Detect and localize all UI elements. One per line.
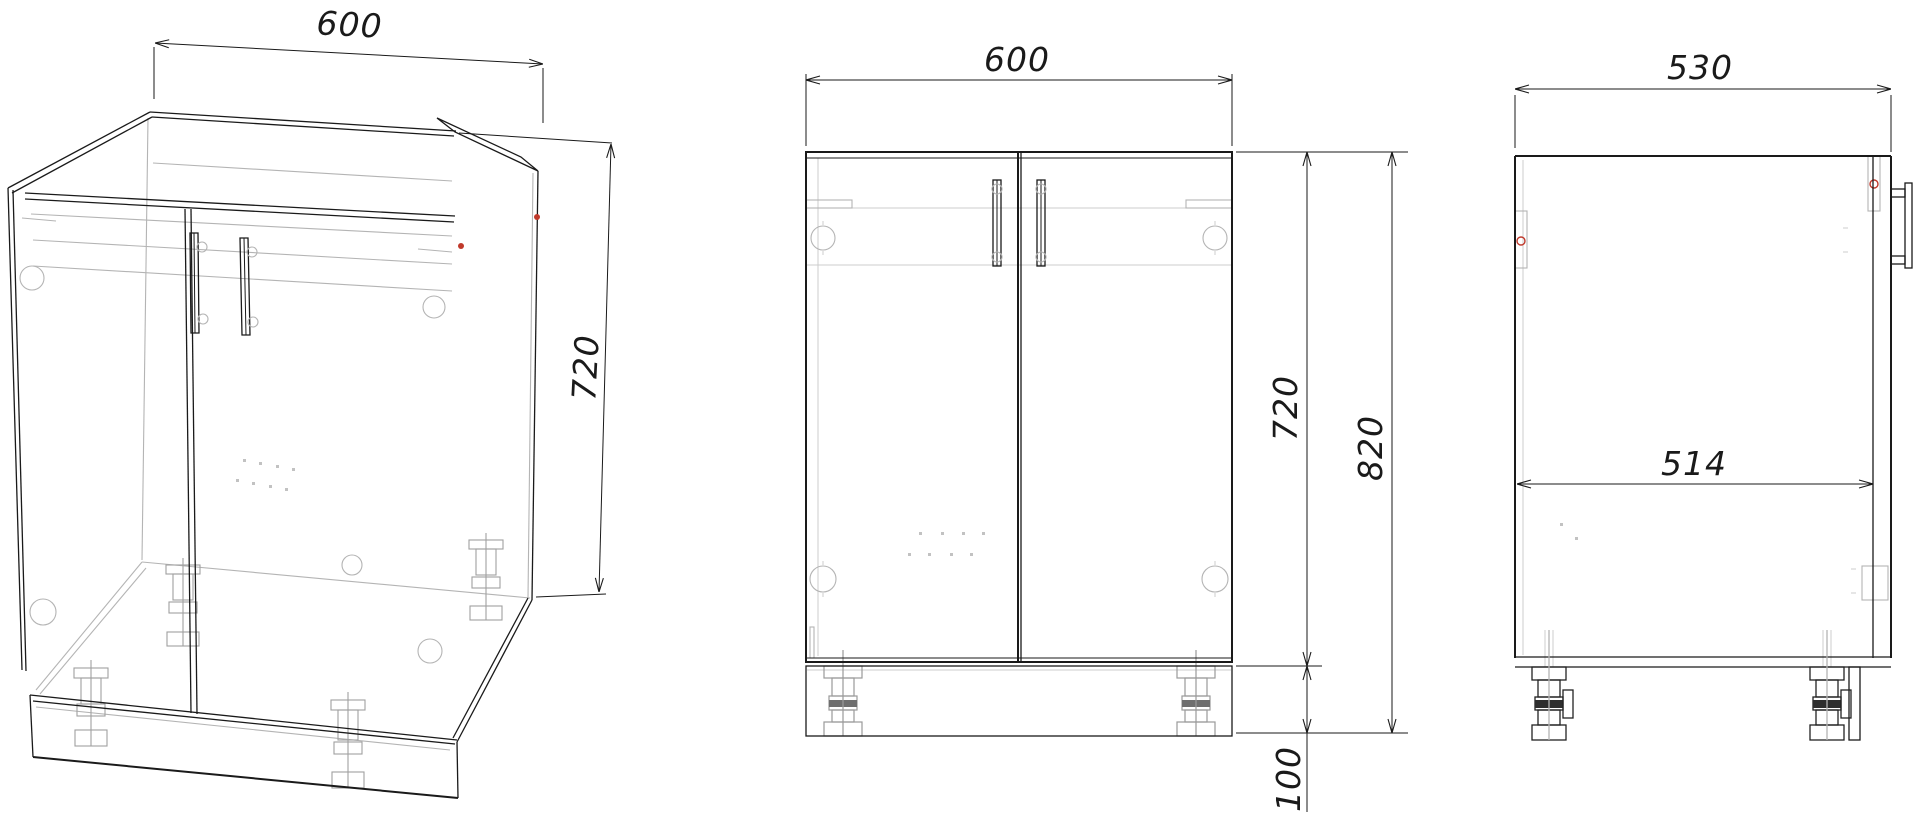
side-depth-dim-label: 530 <box>1667 48 1733 87</box>
iso-door-handles <box>190 233 258 335</box>
wall-bracket <box>1891 183 1912 268</box>
front-width-dimension: 600 <box>806 40 1232 146</box>
front-pin-dots <box>908 532 985 556</box>
front-overall-height-dim-label: 820 <box>1351 415 1390 481</box>
side-hidden-lines <box>1515 156 1888 667</box>
iso-height-dim-label: 720 <box>564 333 606 401</box>
side-depth-dimension: 530 <box>1515 48 1891 152</box>
plinth-outline <box>806 666 1232 736</box>
isometric-view: 600 720 <box>8 3 612 798</box>
front-leg-height-dim-label: 100 <box>1269 746 1308 812</box>
front-width-dim-label: 600 <box>984 40 1050 79</box>
adjustable-leg <box>469 533 503 620</box>
front-door-height-dim-label: 720 <box>1266 375 1305 441</box>
hinge-marker <box>1517 237 1525 245</box>
side-view: 530 514 <box>1515 48 1912 740</box>
front-outline <box>806 152 1232 736</box>
technical-drawing-canvas: 600 720 <box>0 0 1920 834</box>
side-interior-depth-dim-label: 514 <box>1661 444 1727 483</box>
iso-drill-point-markers <box>458 214 540 249</box>
iso-adjustable-legs <box>74 533 503 788</box>
iso-width-dim-label: 600 <box>316 3 384 45</box>
adjustable-leg <box>331 692 365 788</box>
front-overall-height-dimension: 820 <box>1351 152 1392 733</box>
drill-point-marker <box>458 243 464 249</box>
door-handle <box>1036 180 1046 266</box>
drill-point-marker <box>534 214 540 220</box>
front-door-height-dimension: 720 <box>1236 152 1408 666</box>
iso-width-dimension: 600 <box>154 3 543 123</box>
side-adjustable-legs <box>1532 630 1851 740</box>
iso-hinge-bores <box>20 266 445 663</box>
front-view: 600 720 100 820 <box>806 40 1408 812</box>
hinge-marker <box>1870 180 1878 188</box>
iso-pin-dots <box>236 459 295 491</box>
drawing-page: 600 720 <box>0 0 1920 834</box>
side-hinge-markers <box>1517 180 1878 245</box>
side-interior-depth-dimension: 514 <box>1517 444 1873 484</box>
front-leg-height-dimension: 100 <box>1236 666 1408 812</box>
iso-carcass-outline <box>8 112 538 798</box>
door-handle <box>992 180 1002 266</box>
